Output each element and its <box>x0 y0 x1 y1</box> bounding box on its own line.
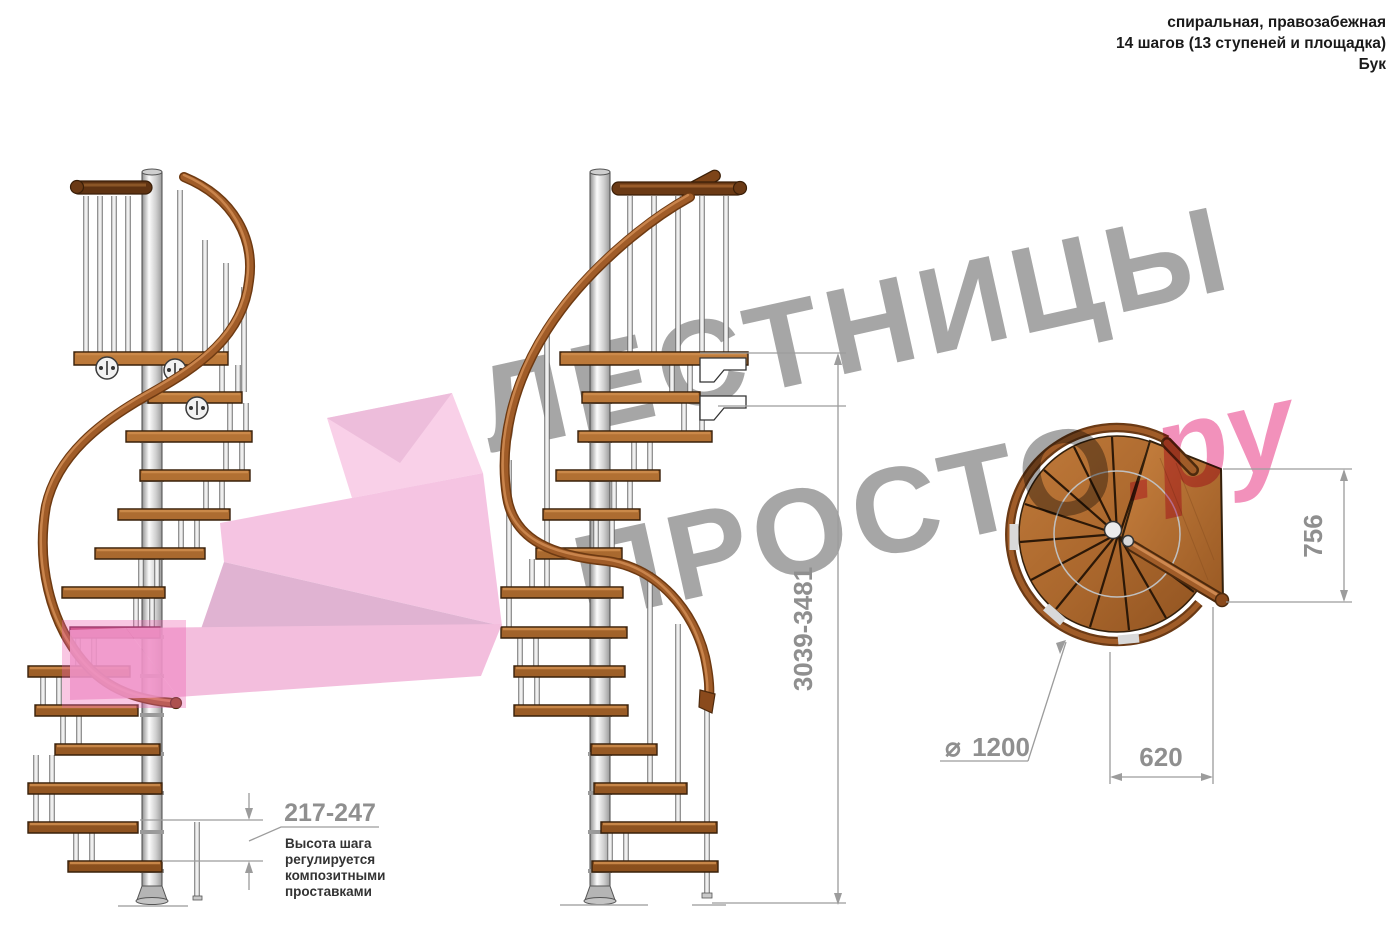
arrow-down-icon <box>1340 590 1348 602</box>
dim-total-height: 3039-3481 <box>788 567 818 691</box>
arrow-right-icon <box>1201 773 1213 781</box>
elevations-svg: 3039-3481 217-247 Высота шага регулирует… <box>0 0 1400 936</box>
baluster-foot <box>702 893 712 898</box>
arrow-down-icon <box>245 808 253 820</box>
handrail-end-flap <box>699 690 715 713</box>
title-line-material: Бук <box>1116 54 1386 75</box>
title-block: спиральная, правозабежная 14 шагов (13 с… <box>1116 12 1386 75</box>
arrow-up-icon <box>834 353 842 365</box>
title-line-type: спиральная, правозабежная <box>1116 12 1386 33</box>
pole-base-plate <box>584 898 616 905</box>
arrow-left-icon <box>1110 773 1122 781</box>
highlighted-step-tint <box>62 620 186 708</box>
baluster-foot <box>193 896 202 900</box>
dim-landing-depth: 756 <box>1298 514 1328 557</box>
middle-elevation-view <box>501 168 748 905</box>
dim-lines-landing-depth <box>1223 469 1352 602</box>
arrow-up-icon <box>1340 469 1348 481</box>
handrail-end-cap <box>734 182 747 195</box>
title-line-steps: 14 шагов (13 ступеней и площадка) <box>1116 33 1386 54</box>
arrow-up-icon <box>245 861 253 873</box>
note-line: Высота шага <box>285 836 372 851</box>
note-line: композитными <box>285 868 385 883</box>
support-bracket <box>700 358 746 382</box>
note-line: проставками <box>285 884 372 899</box>
mounting-disc-icon <box>186 397 208 419</box>
pole-base-plate <box>136 898 168 905</box>
dim-step-rise: 217-247 <box>284 799 376 827</box>
mounting-disc-icon <box>96 357 118 379</box>
drawing-canvas: спиральная, правозабежная 14 шагов (13 с… <box>0 0 1400 936</box>
dim-lines-total-height <box>700 353 846 903</box>
pole-top-cap <box>142 169 162 175</box>
handrail-end-cap <box>71 181 84 194</box>
pole-top-cap <box>590 169 610 175</box>
platform-handrail <box>612 182 744 195</box>
support-bracket <box>700 396 746 420</box>
dim-diameter-symbol: ⌀ <box>945 732 961 762</box>
wood-steps <box>501 352 748 872</box>
dim-landing-width: 620 <box>1139 742 1182 772</box>
dim-diameter-value: 1200 <box>972 732 1030 762</box>
note-line: регулируется <box>285 852 375 867</box>
left-elevation-view <box>28 169 252 906</box>
